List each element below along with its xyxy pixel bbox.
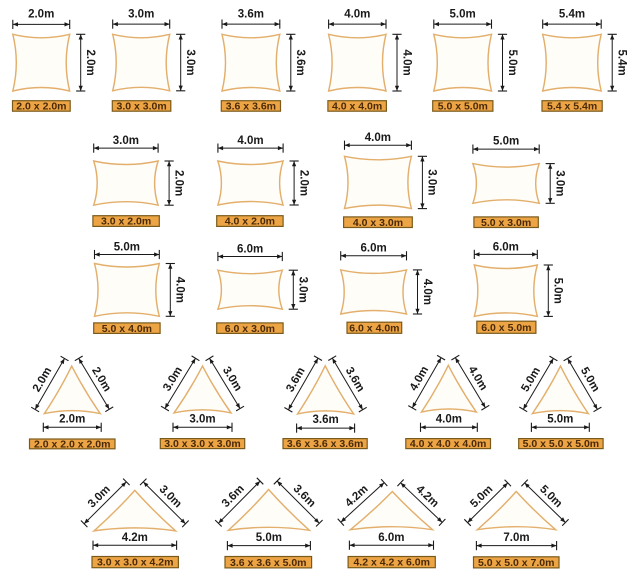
svg-text:6.0m: 6.0m	[237, 243, 263, 255]
svg-text:5.0m: 5.0m	[506, 49, 518, 75]
svg-text:3.6 x 3.6 x 3.6m: 3.6 x 3.6 x 3.6m	[287, 438, 363, 450]
svg-text:5.0m: 5.0m	[449, 9, 475, 21]
svg-text:5.0m: 5.0m	[114, 242, 140, 254]
svg-text:4.2 x 4.2 x 6.0m: 4.2 x 4.2 x 6.0m	[353, 557, 429, 569]
svg-text:6.0 x 3.0m: 6.0 x 3.0m	[225, 323, 275, 335]
svg-text:2.0 x 2.0m: 2.0 x 2.0m	[16, 101, 66, 113]
svg-text:5.0 x 5.0 x 5.0m: 5.0 x 5.0 x 5.0m	[523, 438, 599, 450]
svg-text:3.6m: 3.6m	[312, 414, 338, 426]
svg-text:4.0m: 4.0m	[174, 277, 186, 303]
svg-text:6.0 x 5.0m: 6.0 x 5.0m	[481, 322, 531, 334]
svg-text:3.0m: 3.0m	[113, 135, 139, 147]
svg-text:5.0 x 3.0m: 5.0 x 3.0m	[481, 217, 531, 229]
svg-text:4.2m: 4.2m	[122, 532, 148, 544]
svg-text:2.0m: 2.0m	[297, 170, 309, 196]
svg-text:5.0m: 5.0m	[493, 136, 519, 148]
svg-text:2.0m: 2.0m	[84, 49, 96, 75]
svg-text:3.0m: 3.0m	[128, 9, 154, 21]
svg-text:4.0 x 4.0m: 4.0 x 4.0m	[332, 101, 382, 113]
svg-text:4.0m: 4.0m	[237, 135, 263, 147]
svg-text:5.0m: 5.0m	[547, 414, 573, 426]
svg-text:2.0m: 2.0m	[172, 170, 184, 196]
svg-text:3.0 x 3.0 x 3.0m: 3.0 x 3.0 x 3.0m	[164, 438, 240, 450]
svg-text:3.0 x 3.0m: 3.0 x 3.0m	[116, 101, 166, 113]
svg-text:3.6 x 3.6m: 3.6 x 3.6m	[226, 101, 276, 113]
svg-text:3.0 x 2.0m: 3.0 x 2.0m	[101, 216, 151, 228]
svg-text:4.0 x 2.0m: 4.0 x 2.0m	[225, 216, 275, 228]
svg-text:2.0m: 2.0m	[28, 9, 54, 21]
svg-text:3.6 x 3.6 x 5.0m: 3.6 x 3.6 x 5.0m	[230, 557, 306, 569]
svg-text:3.0m: 3.0m	[189, 414, 215, 426]
svg-text:3.6m: 3.6m	[238, 9, 264, 21]
svg-text:7.0m: 7.0m	[503, 532, 529, 544]
svg-text:6.0 x 4.0m: 6.0 x 4.0m	[349, 322, 399, 334]
svg-text:5.0 x 5.0 x 7.0m: 5.0 x 5.0 x 7.0m	[478, 557, 554, 569]
svg-text:4.0m: 4.0m	[344, 9, 370, 21]
svg-text:4.0m: 4.0m	[400, 49, 412, 75]
svg-text:4.0 x 3.0m: 4.0 x 3.0m	[353, 217, 403, 229]
svg-text:2.0m: 2.0m	[59, 414, 85, 426]
svg-text:3.0 x 3.0 x 4.2m: 3.0 x 3.0 x 4.2m	[97, 557, 173, 569]
svg-text:3.0m: 3.0m	[184, 49, 196, 75]
svg-text:5.4 x 5.4m: 5.4 x 5.4m	[547, 101, 597, 113]
svg-text:6.0m: 6.0m	[493, 241, 519, 253]
svg-text:5.0 x 5.0m: 5.0 x 5.0m	[438, 101, 488, 113]
svg-text:6.0m: 6.0m	[360, 243, 386, 255]
svg-text:3.0m: 3.0m	[426, 169, 438, 195]
svg-text:4.0 x 4.0 x 4.0m: 4.0 x 4.0 x 4.0m	[410, 438, 486, 450]
svg-text:6.0m: 6.0m	[378, 532, 404, 544]
svg-text:3.6m: 3.6m	[294, 49, 306, 75]
svg-text:3.0m: 3.0m	[297, 277, 309, 303]
svg-text:5.0m: 5.0m	[256, 532, 282, 544]
svg-text:5.0m: 5.0m	[552, 278, 564, 304]
svg-text:2.0 x 2.0 x 2.0m: 2.0 x 2.0 x 2.0m	[34, 439, 110, 451]
svg-text:5.0 x 4.0m: 5.0 x 4.0m	[102, 323, 152, 335]
svg-text:3.0m: 3.0m	[554, 170, 566, 196]
svg-text:4.0m: 4.0m	[365, 132, 391, 144]
svg-text:5.4m: 5.4m	[559, 9, 585, 21]
svg-text:4.0m: 4.0m	[436, 414, 462, 426]
svg-text:5.4m: 5.4m	[616, 49, 628, 75]
svg-text:4.0m: 4.0m	[421, 279, 433, 305]
